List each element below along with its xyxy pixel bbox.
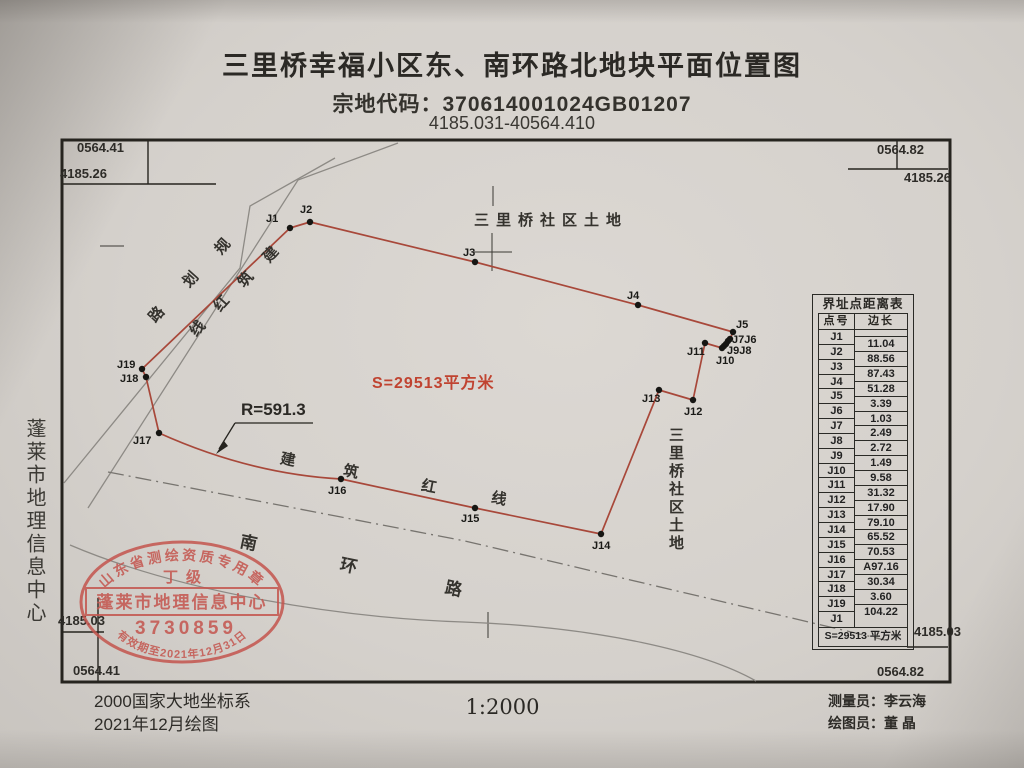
point-label-J17: J17 <box>133 435 151 447</box>
point-label-J2: J2 <box>300 204 312 216</box>
south-road-edge <box>70 545 756 681</box>
table-length-cell: 88.56 <box>855 352 907 367</box>
point-label-J12: J12 <box>684 406 702 418</box>
boundary-point-J3 <box>472 259 478 265</box>
table-length-cell: 17.90 <box>855 501 907 516</box>
boundary-point-J10 <box>719 345 725 351</box>
point-label-J11: J11 <box>687 346 705 358</box>
table-length-cell: 87.43 <box>855 367 907 382</box>
table-length-cell: 30.34 <box>855 575 907 590</box>
table-area-row: S=29513 平方米 <box>819 627 907 645</box>
table-length-cell: 11.04 <box>855 337 907 352</box>
table-col-point-header: 点号 <box>819 314 855 329</box>
boundary-point-J18 <box>143 374 149 380</box>
table-offset-spacer <box>855 330 907 337</box>
grid-ticks <box>100 186 512 638</box>
corner-bl-easting: 0564.41 <box>73 663 120 678</box>
corner-bl-northing: 4185.03 <box>58 613 105 628</box>
page-title: 三里桥幸福小区东、南环路北地块平面位置图 <box>0 44 1024 83</box>
table-length-cell: 3.39 <box>855 397 907 412</box>
table-point-cell: J4 <box>819 375 854 390</box>
parcel-area-label: S=29513平方米 <box>372 369 495 393</box>
table-point-cell: J13 <box>819 508 854 523</box>
table-point-cell: J18 <box>819 582 854 597</box>
table-point-cell: J1 <box>819 612 854 627</box>
corner-tl-northing: 4185.26 <box>60 166 107 181</box>
boundary-point-J17 <box>156 430 162 436</box>
point-label-J10: J10 <box>716 355 734 367</box>
table-length-cell: A97.16 <box>855 560 907 575</box>
table-point-cell: J17 <box>819 568 854 583</box>
draftsman-credit: 绘图员：董 晶 <box>828 713 916 733</box>
corner-br-northing: 4185.03 <box>914 624 961 639</box>
table-point-cell: J12 <box>819 493 854 508</box>
table-point-cell: J1 <box>819 330 854 345</box>
surveyor-credit: 测量员：李云海 <box>828 691 926 711</box>
table-length-cell: 70.53 <box>855 545 907 560</box>
table-point-cell: J5 <box>819 389 854 404</box>
boundary-point-J4 <box>635 302 641 308</box>
boundary-point-J19 <box>139 366 145 372</box>
north-land-label: 三里桥社区土地 <box>474 209 628 230</box>
east-land-label: 三里桥社区土地 <box>665 427 686 553</box>
point-label-J15: J15 <box>461 513 479 525</box>
boundary-point-J14 <box>598 531 604 537</box>
scanned-parcel-map-page: J1J2J3J4J5J7J6J9J8J10J11J12J13J14J15J16J… <box>0 0 1024 768</box>
planned-road-edge-east <box>88 143 398 508</box>
table-length-cell: 31.32 <box>855 486 907 501</box>
table-col-length-header: 边长 <box>855 314 907 329</box>
coordinate-range: 4185.031-40564.410 <box>0 113 1024 134</box>
boundary-point-J2 <box>307 219 313 225</box>
point-label-J4: J4 <box>627 290 640 302</box>
point-label-J16: J16 <box>328 485 346 497</box>
table-length-cell: 2.72 <box>855 441 907 456</box>
table-point-cell: J6 <box>819 404 854 419</box>
point-label-J1: J1 <box>266 213 278 225</box>
table-length-cell: 104.22 <box>855 605 907 620</box>
table-header: 点号 边长 <box>819 314 907 330</box>
table-point-cell: J7 <box>819 419 854 434</box>
curve-radius-label: R=591.3 <box>241 400 306 420</box>
table-point-cell: J10 <box>819 464 854 479</box>
table-point-cell: J19 <box>819 597 854 612</box>
radius-leader <box>216 423 313 454</box>
point-label-J14: J14 <box>592 540 611 552</box>
table-point-cell: J14 <box>819 523 854 538</box>
table-length-cell: 65.52 <box>855 530 907 545</box>
corner-tl-easting: 0564.41 <box>77 140 124 155</box>
table-length-cell: 9.58 <box>855 471 907 486</box>
table-point-cell: J3 <box>819 360 854 375</box>
corner-br-easting: 0564.82 <box>877 664 924 679</box>
point-label-J3: J3 <box>463 247 475 259</box>
table-length-cell: 2.49 <box>855 426 907 441</box>
left-margin-agency-label: 蓬莱市地理信息中心 <box>20 418 49 625</box>
boundary-point-J15 <box>472 505 478 511</box>
table-box: 点号 边长 J1J2J3J4J5J6J7J8J9J10J11J12J13J14J… <box>818 313 908 647</box>
table-body: J1J2J3J4J5J6J7J8J9J10J11J12J13J14J15J16J… <box>819 330 907 627</box>
table-point-cell: J15 <box>819 538 854 553</box>
point-label-J13: J13 <box>642 393 660 405</box>
table-length-cell: 3.60 <box>855 590 907 605</box>
table-length-cell: 1.03 <box>855 412 907 427</box>
boundary-point-J1 <box>287 225 293 231</box>
table-point-cell: J8 <box>819 434 854 449</box>
corner-tr-northing: 4185.26 <box>904 170 951 185</box>
point-label-J19: J19 <box>117 359 135 371</box>
table-point-col: J1J2J3J4J5J6J7J8J9J10J11J12J13J14J15J16J… <box>819 330 855 627</box>
table-point-cell: J16 <box>819 553 854 568</box>
boundary-point-J12 <box>690 397 696 403</box>
corner-tr-easting: 0564.82 <box>877 142 924 157</box>
point-label-J18: J18 <box>120 373 138 385</box>
boundary-distance-table: 界址点距离表 点号 边长 J1J2J3J4J5J6J7J8J9J10J11J12… <box>812 294 914 650</box>
table-point-cell: J9 <box>819 449 854 464</box>
point-label-J5: J5 <box>736 319 748 331</box>
table-point-cell: J2 <box>819 345 854 360</box>
table-length-col: 11.0488.5687.4351.283.391.032.492.721.49… <box>855 330 907 627</box>
table-length-cell: 1.49 <box>855 456 907 471</box>
table-title: 界址点距离表 <box>813 295 913 313</box>
table-point-cell: J11 <box>819 478 854 493</box>
table-length-cell: 51.28 <box>855 382 907 397</box>
table-length-cell: 79.10 <box>855 516 907 531</box>
